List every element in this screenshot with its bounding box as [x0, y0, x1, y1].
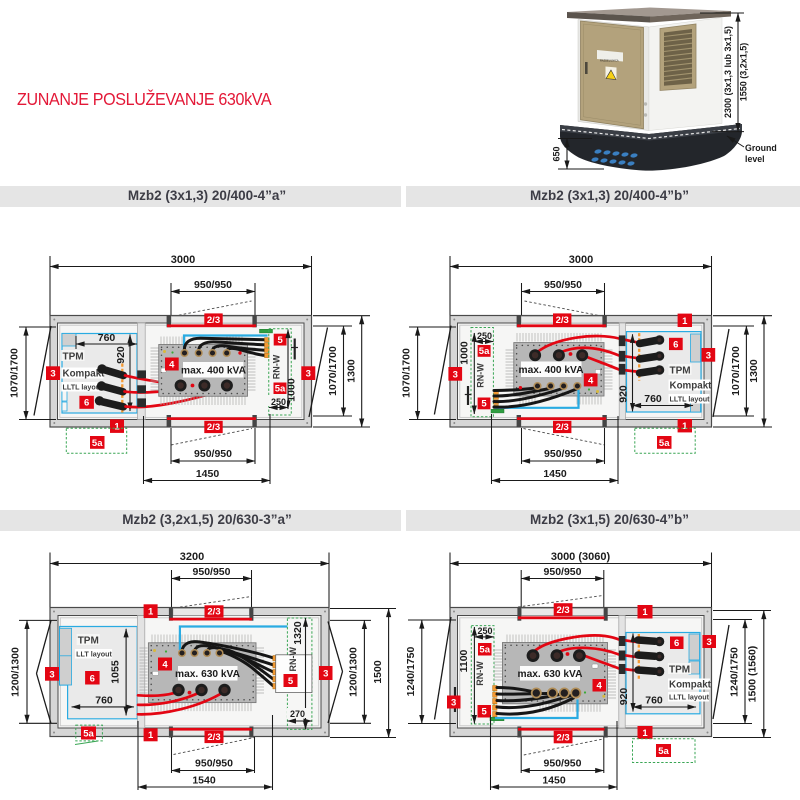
svg-text:3000: 3000	[171, 254, 195, 266]
svg-text:TPM: TPM	[78, 636, 99, 647]
svg-text:5: 5	[288, 676, 294, 687]
svg-text:920: 920	[115, 346, 127, 364]
svg-text:RN-W: RN-W	[288, 647, 298, 672]
svg-text:5a: 5a	[659, 438, 670, 449]
svg-text:Kompakt: Kompakt	[669, 680, 712, 691]
svg-text:1200/1300: 1200/1300	[348, 647, 360, 697]
svg-text:760: 760	[644, 393, 662, 405]
svg-text:1: 1	[642, 728, 648, 739]
svg-text:1450: 1450	[542, 775, 566, 787]
svg-text:Kompakt: Kompakt	[670, 381, 713, 392]
svg-text:5a: 5a	[658, 746, 669, 757]
svg-text:2/3: 2/3	[556, 732, 569, 743]
svg-text:max. 630 kVA: max. 630 kVA	[518, 669, 584, 680]
svg-text:1500: 1500	[372, 660, 384, 684]
svg-text:TPM: TPM	[63, 352, 84, 363]
svg-text:1070/1700: 1070/1700	[401, 348, 413, 398]
svg-text:3: 3	[49, 669, 54, 680]
svg-text:5a: 5a	[275, 383, 286, 394]
svg-text:RN-W: RN-W	[475, 363, 485, 388]
svg-text:2/3: 2/3	[207, 315, 220, 326]
svg-text:250: 250	[477, 331, 492, 341]
svg-text:RN-W: RN-W	[475, 661, 485, 686]
svg-text:RAZDELILNICA: RAZDELILNICA	[600, 59, 619, 63]
svg-text:3: 3	[706, 350, 711, 361]
svg-text:950/950: 950/950	[544, 279, 582, 291]
svg-text:950/950: 950/950	[194, 448, 232, 460]
svg-text:3: 3	[451, 697, 456, 708]
svg-text:1070/1700: 1070/1700	[9, 348, 21, 398]
svg-text:4: 4	[588, 375, 594, 386]
svg-text:1: 1	[114, 422, 120, 433]
svg-text:760: 760	[95, 694, 113, 706]
svg-text:270: 270	[290, 709, 305, 719]
svg-text:1055: 1055	[110, 660, 122, 684]
svg-text:3: 3	[50, 369, 55, 380]
svg-text:1500 (1560): 1500 (1560)	[747, 646, 759, 703]
svg-text:1070/1700: 1070/1700	[327, 346, 339, 396]
svg-text:760: 760	[98, 332, 116, 344]
svg-text:max. 400 kVA: max. 400 kVA	[181, 366, 247, 377]
svg-text:1: 1	[682, 316, 688, 327]
svg-text:2/3: 2/3	[556, 315, 569, 326]
svg-text:1: 1	[148, 607, 154, 618]
svg-text:950/950: 950/950	[195, 758, 233, 770]
svg-text:5: 5	[482, 707, 488, 718]
svg-text:1320: 1320	[292, 621, 304, 645]
svg-text:950/950: 950/950	[544, 758, 582, 770]
svg-text:6: 6	[84, 398, 89, 409]
svg-text:6: 6	[673, 339, 678, 350]
svg-text:4: 4	[162, 659, 168, 670]
svg-text:250: 250	[271, 397, 286, 407]
svg-text:level: level	[745, 154, 765, 164]
svg-text:1540: 1540	[192, 775, 216, 787]
svg-text:Ground: Ground	[745, 143, 777, 153]
svg-text:3: 3	[306, 369, 311, 380]
svg-text:920: 920	[618, 385, 630, 403]
svg-text:1100: 1100	[458, 649, 470, 672]
svg-text:950/950: 950/950	[544, 448, 582, 460]
svg-text:1000: 1000	[285, 378, 297, 402]
svg-text:RN-W: RN-W	[272, 354, 282, 379]
svg-text:2300 (3x1,3 lub 3x1,5): 2300 (3x1,3 lub 3x1,5)	[723, 26, 733, 118]
svg-text:4: 4	[169, 359, 175, 370]
svg-text:5: 5	[481, 399, 487, 410]
svg-text:2/3: 2/3	[556, 605, 569, 616]
svg-text:TPM: TPM	[669, 665, 690, 676]
svg-text:920: 920	[618, 688, 630, 706]
svg-text:950/950: 950/950	[193, 566, 231, 578]
svg-text:950/950: 950/950	[194, 279, 232, 291]
svg-text:1450: 1450	[543, 468, 567, 480]
svg-text:3000 (3060): 3000 (3060)	[551, 551, 611, 563]
svg-text:LLTL layout: LLTL layout	[669, 693, 710, 702]
svg-text:1: 1	[148, 730, 154, 741]
svg-text:max. 400 kVA: max. 400 kVA	[519, 365, 585, 376]
svg-text:3: 3	[707, 637, 712, 648]
svg-text:6: 6	[674, 638, 679, 649]
svg-text:1: 1	[642, 607, 648, 618]
svg-text:1000: 1000	[459, 341, 471, 365]
svg-text:1070/1700: 1070/1700	[730, 346, 742, 396]
svg-text:1240/1750: 1240/1750	[405, 647, 417, 697]
svg-text:760: 760	[645, 695, 663, 707]
svg-text:2/3: 2/3	[207, 422, 220, 433]
svg-text:2/3: 2/3	[556, 422, 569, 433]
svg-text:250: 250	[477, 626, 492, 636]
svg-text:1200/1300: 1200/1300	[10, 647, 22, 697]
svg-text:LLTL layout: LLTL layout	[670, 395, 711, 404]
svg-text:2/3: 2/3	[207, 732, 220, 743]
svg-text:950/950: 950/950	[544, 566, 582, 578]
svg-text:5a: 5a	[479, 346, 490, 357]
svg-text:1300: 1300	[346, 359, 358, 383]
svg-text:1300: 1300	[748, 359, 760, 383]
svg-text:650: 650	[552, 146, 562, 161]
svg-text:4: 4	[597, 681, 603, 692]
svg-text:1450: 1450	[196, 468, 220, 480]
svg-text:5a: 5a	[479, 645, 490, 656]
svg-text:LLT layout: LLT layout	[76, 650, 112, 659]
svg-text:3200: 3200	[180, 551, 204, 563]
svg-text:3000: 3000	[569, 254, 593, 266]
svg-text:TPM: TPM	[670, 366, 691, 377]
svg-text:6: 6	[90, 673, 95, 684]
svg-text:3: 3	[453, 369, 458, 380]
svg-text:5a: 5a	[83, 728, 94, 739]
svg-text:1550 (3,2x1,5): 1550 (3,2x1,5)	[739, 43, 749, 102]
svg-text:5a: 5a	[92, 438, 103, 449]
svg-text:2/3: 2/3	[207, 607, 220, 618]
svg-text:1240/1750: 1240/1750	[728, 647, 740, 697]
svg-text:1: 1	[682, 421, 688, 432]
svg-text:5: 5	[277, 335, 283, 346]
svg-text:3: 3	[323, 669, 328, 680]
svg-text:max. 630 kVA: max. 630 kVA	[175, 669, 241, 680]
